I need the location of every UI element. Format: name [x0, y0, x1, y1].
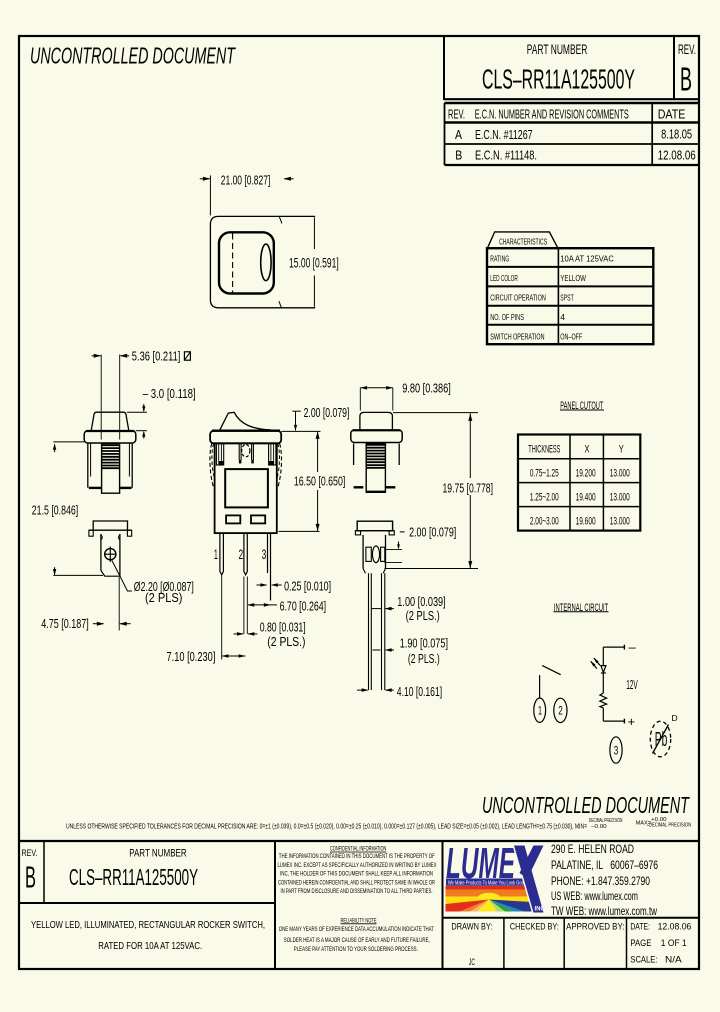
svg-text:4: 4	[560, 312, 565, 322]
svg-text:–DECIMAL PRECISION: –DECIMAL PRECISION	[647, 823, 692, 829]
svg-text:JC: JC	[469, 957, 475, 968]
svg-text:(2 PLS): (2 PLS)	[145, 591, 183, 605]
svg-text:YELLOW: YELLOW	[560, 273, 586, 283]
svg-text:7.10 [0.230]: 7.10 [0.230]	[167, 650, 216, 664]
svg-text:PANEL CUTOUT: PANEL CUTOUT	[560, 400, 603, 412]
svg-text:RELIABILITY NOTE: RELIABILITY NOTE	[341, 917, 377, 924]
svg-text:2.00 [0.079]: 2.00 [0.079]	[304, 406, 350, 420]
svg-text:13.000: 13.000	[610, 491, 630, 503]
svg-text:0.25 [0.010]: 0.25 [0.010]	[284, 580, 331, 594]
svg-text:21.00 [0.827]: 21.00 [0.827]	[221, 172, 270, 187]
svg-text:12.08.06: 12.08.06	[658, 148, 696, 163]
svg-text:10A AT 125VAC: 10A AT 125VAC	[560, 254, 614, 264]
svg-text:(2 PLS.): (2 PLS.)	[408, 652, 440, 666]
svg-text:+: +	[628, 714, 636, 729]
svg-text:A: A	[455, 127, 462, 142]
svg-text:1.25~2.00: 1.25~2.00	[530, 491, 559, 503]
svg-text:INC, THE HOLDER OF THIS DOCUME: INC, THE HOLDER OF THIS DOCUMENT SHALL K…	[280, 871, 433, 878]
svg-text:1.90 [0.075]: 1.90 [0.075]	[400, 637, 448, 651]
svg-text:1 OF 1: 1 OF 1	[661, 938, 687, 949]
svg-text:We Make Products To Make You L: We Make Products To Make You Look Good	[448, 881, 526, 887]
svg-text:19.75 [0.778]: 19.75 [0.778]	[443, 481, 494, 495]
svg-text:N/A: N/A	[665, 955, 682, 966]
svg-text:RATED FOR 10A AT 125VAC.: RATED FOR 10A AT 125VAC.	[98, 940, 202, 952]
svg-text:PHONE: +1.847.359.2790: PHONE: +1.847.359.2790	[551, 874, 650, 888]
svg-text:IN PART FROM DISCLOSURE AND DI: IN PART FROM DISCLOSURE AND DISSEMINATIO…	[281, 888, 433, 895]
svg-text:6.70 [0.264]: 6.70 [0.264]	[280, 600, 327, 614]
svg-text:E.C.N. #11267: E.C.N. #11267	[475, 127, 533, 142]
svg-text:1: 1	[214, 546, 218, 562]
svg-text:PART NUMBER: PART NUMBER	[527, 41, 588, 57]
svg-text:CONTAINED HEREIN CONFIDENTIAL: CONTAINED HEREIN CONFIDENTIAL AND SHALL …	[278, 879, 435, 886]
svg-text:E.C.N. NUMBER AND REVISION COM: E.C.N. NUMBER AND REVISION COMMENTS	[475, 106, 629, 121]
svg-text:(2 PLS.): (2 PLS.)	[406, 609, 440, 623]
svg-text:21.5 [0.846]: 21.5 [0.846]	[32, 504, 78, 518]
svg-text:DATE:: DATE:	[630, 922, 650, 933]
svg-text:16.50 [0.650]: 16.50 [0.650]	[294, 474, 345, 488]
svg-text:TW WEB: www.lumex.com.tw: TW WEB: www.lumex.com.tw	[551, 904, 657, 918]
svg-text:2: 2	[239, 546, 244, 562]
svg-text:E.C.N. #11148.: E.C.N. #11148.	[475, 147, 537, 162]
svg-text:3: 3	[262, 546, 267, 562]
svg-text:– 3.0 [0.118]: – 3.0 [0.118]	[143, 387, 196, 401]
svg-text:12V: 12V	[626, 678, 638, 692]
svg-text:(2 PLS.): (2 PLS.)	[267, 635, 305, 649]
svg-text:B: B	[455, 147, 462, 162]
svg-text:NO. OF PINS: NO. OF PINS	[490, 312, 524, 322]
svg-text:THE INFORMATION CONTAINED IN T: THE INFORMATION CONTAINED IN THIS DOCUME…	[279, 853, 435, 860]
svg-text:Pb: Pb	[655, 729, 668, 751]
svg-text:D: D	[672, 713, 678, 723]
svg-text:4.75 [0.187]: 4.75 [0.187]	[41, 617, 89, 631]
svg-text:CLS–RR11A125500Y: CLS–RR11A125500Y	[482, 64, 635, 95]
svg-text:19.200: 19.200	[576, 467, 596, 479]
svg-text:PAGE: PAGE	[630, 938, 651, 949]
svg-text:UNCONTROLLED DOCUMENT: UNCONTROLLED DOCUMENT	[482, 792, 690, 818]
svg-text:19.600: 19.600	[576, 515, 596, 527]
svg-text:4.10 [0.161]: 4.10 [0.161]	[397, 685, 442, 699]
svg-text:290 E. HELEN ROAD: 290 E. HELEN ROAD	[551, 842, 634, 856]
svg-text:DRAWN BY:: DRAWN BY:	[451, 922, 492, 933]
svg-text:CIRCUIT OPERATION: CIRCUIT OPERATION	[490, 293, 546, 303]
svg-text:0.80 [0.031]: 0.80 [0.031]	[260, 621, 306, 635]
svg-text:REV.: REV.	[448, 106, 465, 121]
svg-text:2: 2	[558, 704, 563, 718]
svg-text:ON–OFF: ON–OFF	[560, 331, 582, 341]
svg-text:PLEASE PAY ATTENTION TO YOUR S: PLEASE PAY ATTENTION TO YOUR SOLDERING P…	[294, 946, 418, 953]
svg-text:APPROVED BY:: APPROVED BY:	[566, 922, 624, 933]
svg-text:SCALE:: SCALE:	[630, 955, 657, 966]
svg-text:0.75~1.25: 0.75~1.25	[530, 467, 559, 479]
svg-text:YELLOW LED, ILLUMINATED, RECTA: YELLOW LED, ILLUMINATED, RECTANGULAR ROC…	[31, 919, 265, 931]
svg-text:US WEB: www.lumex.com: US WEB: www.lumex.com	[551, 889, 638, 903]
svg-text:13.000: 13.000	[610, 515, 630, 527]
svg-text:X: X	[585, 443, 590, 455]
svg-text:9.80 [0.386]: 9.80 [0.386]	[402, 381, 451, 395]
svg-text:SOLDER HEAT IS A MAJOR CAUSE O: SOLDER HEAT IS A MAJOR CAUSE OF EARLY AN…	[284, 937, 430, 944]
svg-text:Y: Y	[619, 443, 624, 455]
svg-text:SWITCH OPERATION: SWITCH OPERATION	[490, 331, 544, 341]
svg-text:UNCONTROLLED DOCUMENT: UNCONTROLLED DOCUMENT	[30, 43, 236, 69]
svg-text:–0.00: –0.00	[591, 824, 607, 830]
svg-text:2.00~3.00: 2.00~3.00	[530, 515, 559, 527]
svg-text:19.400: 19.400	[576, 491, 596, 503]
svg-text:INC.: INC.	[535, 907, 547, 913]
svg-text:REV.: REV.	[678, 41, 696, 57]
svg-text:1.00 [0.039]: 1.00 [0.039]	[397, 595, 445, 609]
svg-text:B: B	[25, 860, 36, 895]
svg-text:RATING: RATING	[490, 254, 509, 264]
svg-text:13.000: 13.000	[610, 467, 630, 479]
svg-text:PALATINE, IL 60067–6976: PALATINE, IL 60067–6976	[551, 858, 658, 872]
svg-text:–: –	[629, 640, 637, 655]
svg-text:8.18.05: 8.18.05	[661, 127, 692, 142]
svg-text:CONFIDENTIAL INFORMATION: CONFIDENTIAL INFORMATION	[330, 846, 386, 853]
svg-text:LED COLOR: LED COLOR	[490, 273, 518, 283]
svg-text:SPST: SPST	[560, 293, 573, 303]
svg-text:ONE MANY YEARS OF EXPERIENCE D: ONE MANY YEARS OF EXPERIENCE DATA ACCUMU…	[279, 926, 434, 933]
svg-text:CLS–RR11A125500Y: CLS–RR11A125500Y	[69, 864, 198, 890]
svg-text:LUMEX INC. EXCEPT AS SPECIFIC: LUMEX INC. EXCEPT AS SPECIFICALLY AUTHOR…	[278, 862, 437, 869]
svg-text:15.00 [0.591]: 15.00 [0.591]	[289, 254, 339, 270]
svg-text:5.36 [0.211]: 5.36 [0.211]	[132, 350, 181, 364]
svg-text:2.00 [0.079]: 2.00 [0.079]	[409, 525, 456, 539]
svg-text:1: 1	[538, 704, 542, 718]
svg-text:REV.: REV.	[22, 848, 38, 859]
svg-text:THICKNESS: THICKNESS	[528, 443, 560, 455]
svg-text:PART NUMBER: PART NUMBER	[129, 848, 187, 860]
svg-text:CHARACTERISTICS: CHARACTERISTICS	[499, 236, 547, 246]
svg-text:12.08.06: 12.08.06	[658, 922, 692, 933]
svg-text:UNLESS OTHERWISE SPECIFIED TOL: UNLESS OTHERWISE SPECIFIED TOLERANCES FO…	[66, 822, 587, 831]
svg-text:DATE: DATE	[658, 106, 686, 121]
svg-text:3: 3	[614, 744, 619, 758]
svg-text:B: B	[680, 61, 692, 98]
svg-text:CHECKED BY:: CHECKED BY:	[510, 922, 559, 933]
